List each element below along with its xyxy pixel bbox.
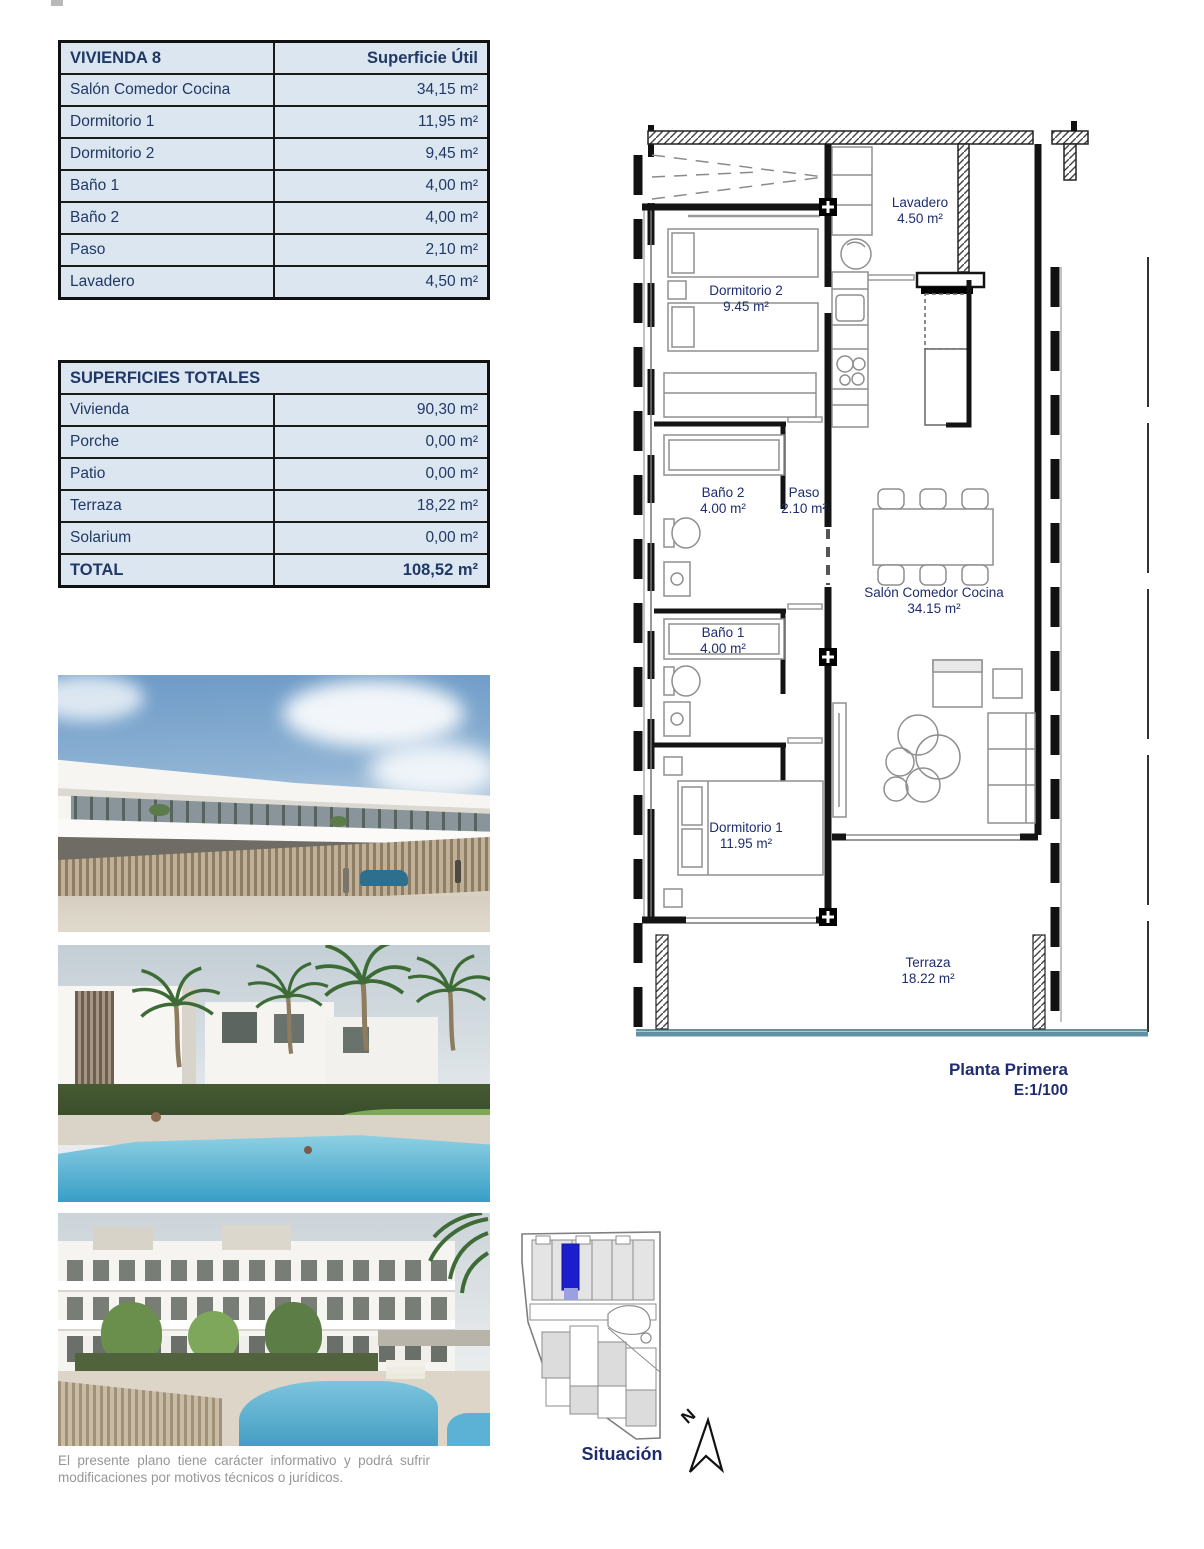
plan-scale: E:1/100 [1014,1082,1068,1099]
row-value: 0,00 m² [274,458,489,490]
row-label: Porche [60,426,275,458]
north-needle [690,1420,722,1472]
room-area-paso: 2.10 m² [781,501,827,516]
table-header-row: VIVIENDA 8 Superficie Útil [60,42,489,75]
useful-surface-table: VIVIENDA 8 Superficie Útil Salón Comedor… [58,40,490,300]
terrace-elements [636,935,1148,1034]
room-area-lavadero: 4.50 m² [897,211,943,226]
room-label-salon: Salón Comedor Cocina [864,585,1004,600]
kitchen-lavadero [832,144,984,427]
render-photo-street [58,675,490,932]
table-header-right: Superficie Útil [274,42,489,75]
row-label: Patio [60,458,275,490]
row-label: Vivienda [60,394,275,426]
site-plan [512,1222,672,1447]
row-value: 0,00 m² [274,426,489,458]
table-row: Baño 24,00 m² [60,202,489,234]
table-row: Lavadero4,50 m² [60,266,489,299]
photo-roofbox [222,1225,291,1251]
room-label-terraza: Terraza [905,955,951,970]
row-label: Terraza [60,490,275,522]
row-label: Baño 1 [60,170,275,202]
photo-person [343,868,349,894]
row-value: 18,22 m² [274,490,489,522]
row-value: 4,00 m² [274,170,489,202]
row-label: Salón Comedor Cocina [60,74,275,106]
table-total-row: TOTAL108,52 m² [60,554,489,587]
row-value: 4,00 m² [274,202,489,234]
photo-ground [58,896,490,932]
disclaimer-text: El presente plano tiene carácter informa… [58,1452,430,1486]
room-label-paso: Paso [789,485,820,500]
table-row: Porche0,00 m² [60,426,489,458]
row-value: 11,95 m² [274,106,489,138]
photo-balcony-plant [330,816,347,826]
north-label: N [678,1405,700,1427]
room-label-bano2: Baño 2 [702,485,745,500]
plan-title: Planta Primera [949,1060,1069,1079]
bedroom2-furniture [664,229,818,417]
table-row: Paso2,10 m² [60,234,489,266]
row-value: 2,10 m² [274,234,489,266]
photo-palm-fronds [370,1213,490,1323]
render-photo-apartments [58,1213,490,1446]
north-arrow: N [676,1400,732,1484]
photo-roofbox [93,1227,153,1250]
table-row: Salón Comedor Cocina34,15 m² [60,74,489,106]
row-value: 0,00 m² [274,522,489,554]
table-row: Solarium0,00 m² [60,522,489,554]
photo-person [455,860,461,883]
table-row: Baño 14,00 m² [60,170,489,202]
roof-projection-lines [652,155,824,199]
room-label-bano1: Baño 1 [702,625,745,640]
table-title: VIVIENDA 8 [60,42,275,75]
plan-sheet-page: { "surface_table": { "title": "VIVIENDA … [0,0,1204,1549]
room-area-terraza: 18.22 m² [901,971,955,986]
photo-cloud [283,680,464,747]
photo-pool-small [447,1413,490,1446]
row-label: Lavadero [60,266,275,299]
row-label: Dormitorio 2 [60,138,275,170]
table-row: Terraza18,22 m² [60,490,489,522]
table-row: Vivienda90,30 m² [60,394,489,426]
row-value: 9,45 m² [274,138,489,170]
disclaimer-line2: modificaciones por motivos técnicos o ju… [58,1469,430,1486]
room-area-salon: 34.15 m² [907,601,961,616]
table-row: Dormitorio 29,45 m² [60,138,489,170]
photo-pool [239,1381,438,1446]
row-value: 34,15 m² [274,74,489,106]
room-area-dormitorio2: 9.45 m² [723,299,769,314]
row-value: 90,30 m² [274,394,489,426]
living-furniture [833,489,1035,823]
site-highlight-terrace [564,1288,578,1300]
site-top-block [532,1236,654,1300]
disclaimer-line1: El presente plano tiene carácter informa… [58,1452,430,1469]
render-photo-pool [58,945,490,1202]
table-row: Patio0,00 m² [60,458,489,490]
table-header-row: SUPERFICIES TOTALES [60,362,489,395]
photo-car [360,870,408,885]
row-label: Dormitorio 1 [60,106,275,138]
site-highlight-unit [562,1244,579,1290]
room-area-bano2: 4.00 m² [700,501,746,516]
room-label-dormitorio1: Dormitorio 1 [709,820,783,835]
table-row: Dormitorio 111,95 m² [60,106,489,138]
row-label: Solarium [60,522,275,554]
room-area-dormitorio1: 11.95 m² [720,836,773,851]
room-label-dormitorio2: Dormitorio 2 [709,283,783,298]
total-label: TOTAL [60,554,275,587]
total-value: 108,52 m² [274,554,489,587]
photo-palm-trees [58,945,490,1202]
room-area-bano1: 4.00 m² [700,641,746,656]
room-label-lavadero: Lavadero [892,195,948,210]
row-label: Baño 2 [60,202,275,234]
scan-smudge [51,0,63,6]
site-plan-label: Situación [562,1444,682,1465]
table-title: SUPERFICIES TOTALES [60,362,489,395]
photo-lounger [386,1360,425,1367]
row-value: 4,50 m² [274,266,489,299]
floor-plan-drawing: Lavadero 4.50 m² Dormitorio 2 9.45 m² Ba… [628,117,1158,1117]
total-surface-table: SUPERFICIES TOTALES Vivienda90,30 m² Por… [58,360,490,588]
row-label: Paso [60,234,275,266]
photo-pergola [378,1330,490,1346]
